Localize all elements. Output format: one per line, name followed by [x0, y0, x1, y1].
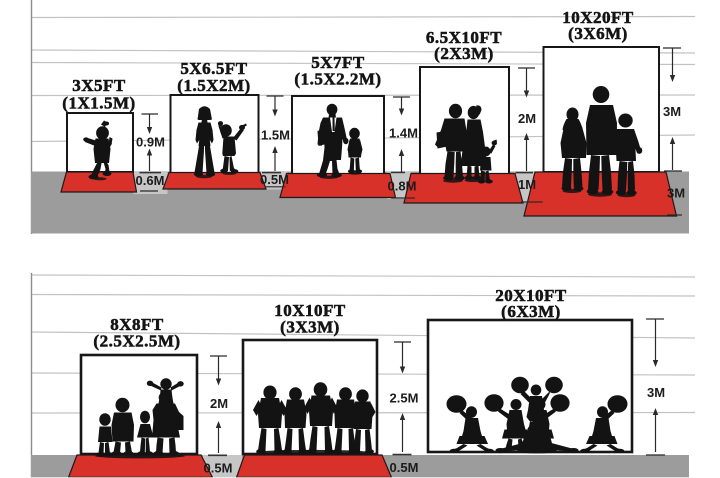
svg-text:(2.5X2.5M): (2.5X2.5M)	[93, 332, 180, 351]
svg-text:1M: 1M	[518, 177, 536, 192]
svg-text:3M: 3M	[663, 104, 681, 119]
svg-text:(3X3M): (3X3M)	[280, 318, 340, 337]
svg-text:3X5FT: 3X5FT	[72, 76, 126, 95]
svg-text:1.4M: 1.4M	[389, 126, 418, 141]
svg-text:0.5M: 0.5M	[204, 461, 233, 476]
svg-text:(3X6M): (3X6M)	[568, 24, 628, 43]
svg-text:3M: 3M	[667, 186, 685, 201]
svg-text:0.5M: 0.5M	[260, 172, 289, 187]
svg-text:(1.5X2M): (1.5X2M)	[177, 76, 250, 95]
svg-text:2.5M: 2.5M	[390, 391, 419, 406]
svg-text:(1X1.5M): (1X1.5M)	[62, 94, 135, 113]
svg-text:(1.5X2.2M): (1.5X2.2M)	[294, 70, 381, 89]
svg-text:2M: 2M	[518, 111, 536, 126]
svg-text:2M: 2M	[210, 396, 228, 411]
svg-text:0.8M: 0.8M	[388, 179, 417, 194]
svg-text:0.5M: 0.5M	[390, 460, 419, 475]
svg-text:0.9M: 0.9M	[136, 135, 165, 150]
svg-text:3M: 3M	[647, 385, 665, 400]
svg-text:1.5M: 1.5M	[261, 128, 290, 143]
svg-text:(2X3M): (2X3M)	[434, 44, 494, 63]
svg-text:(6X3M): (6X3M)	[501, 302, 561, 321]
svg-text:0.6M: 0.6M	[136, 173, 165, 188]
